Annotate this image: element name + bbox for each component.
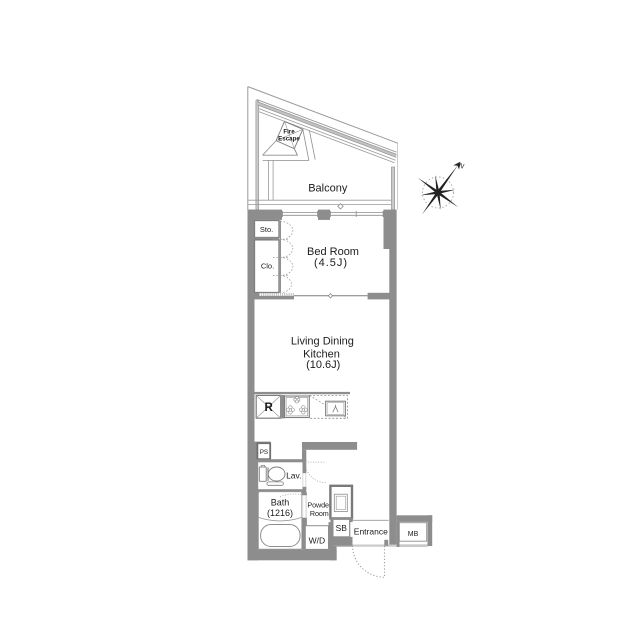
svg-text:(4.5J): (4.5J) <box>314 257 348 269</box>
svg-text:Bath: Bath <box>271 497 290 507</box>
svg-text:Balcony: Balcony <box>308 183 348 195</box>
svg-text:Sto.: Sto. <box>260 225 273 234</box>
svg-text:(10.6J): (10.6J) <box>306 359 340 371</box>
svg-text:W/D: W/D <box>309 535 326 545</box>
svg-text:Room: Room <box>310 509 329 518</box>
svg-text:Living Dining: Living Dining <box>291 336 354 348</box>
svg-text:SB: SB <box>336 523 348 533</box>
svg-text:PS: PS <box>260 449 268 456</box>
svg-text:Escape: Escape <box>278 136 300 143</box>
svg-text:Clo.: Clo. <box>261 262 274 271</box>
svg-text:(1216): (1216) <box>267 508 293 518</box>
svg-text:Entrance: Entrance <box>354 526 388 536</box>
svg-text:Bed Room: Bed Room <box>307 246 359 258</box>
svg-text:Fire: Fire <box>283 129 295 136</box>
svg-text:R: R <box>265 402 274 414</box>
svg-text:Lav.: Lav. <box>286 470 301 480</box>
svg-text:MB: MB <box>408 531 419 538</box>
